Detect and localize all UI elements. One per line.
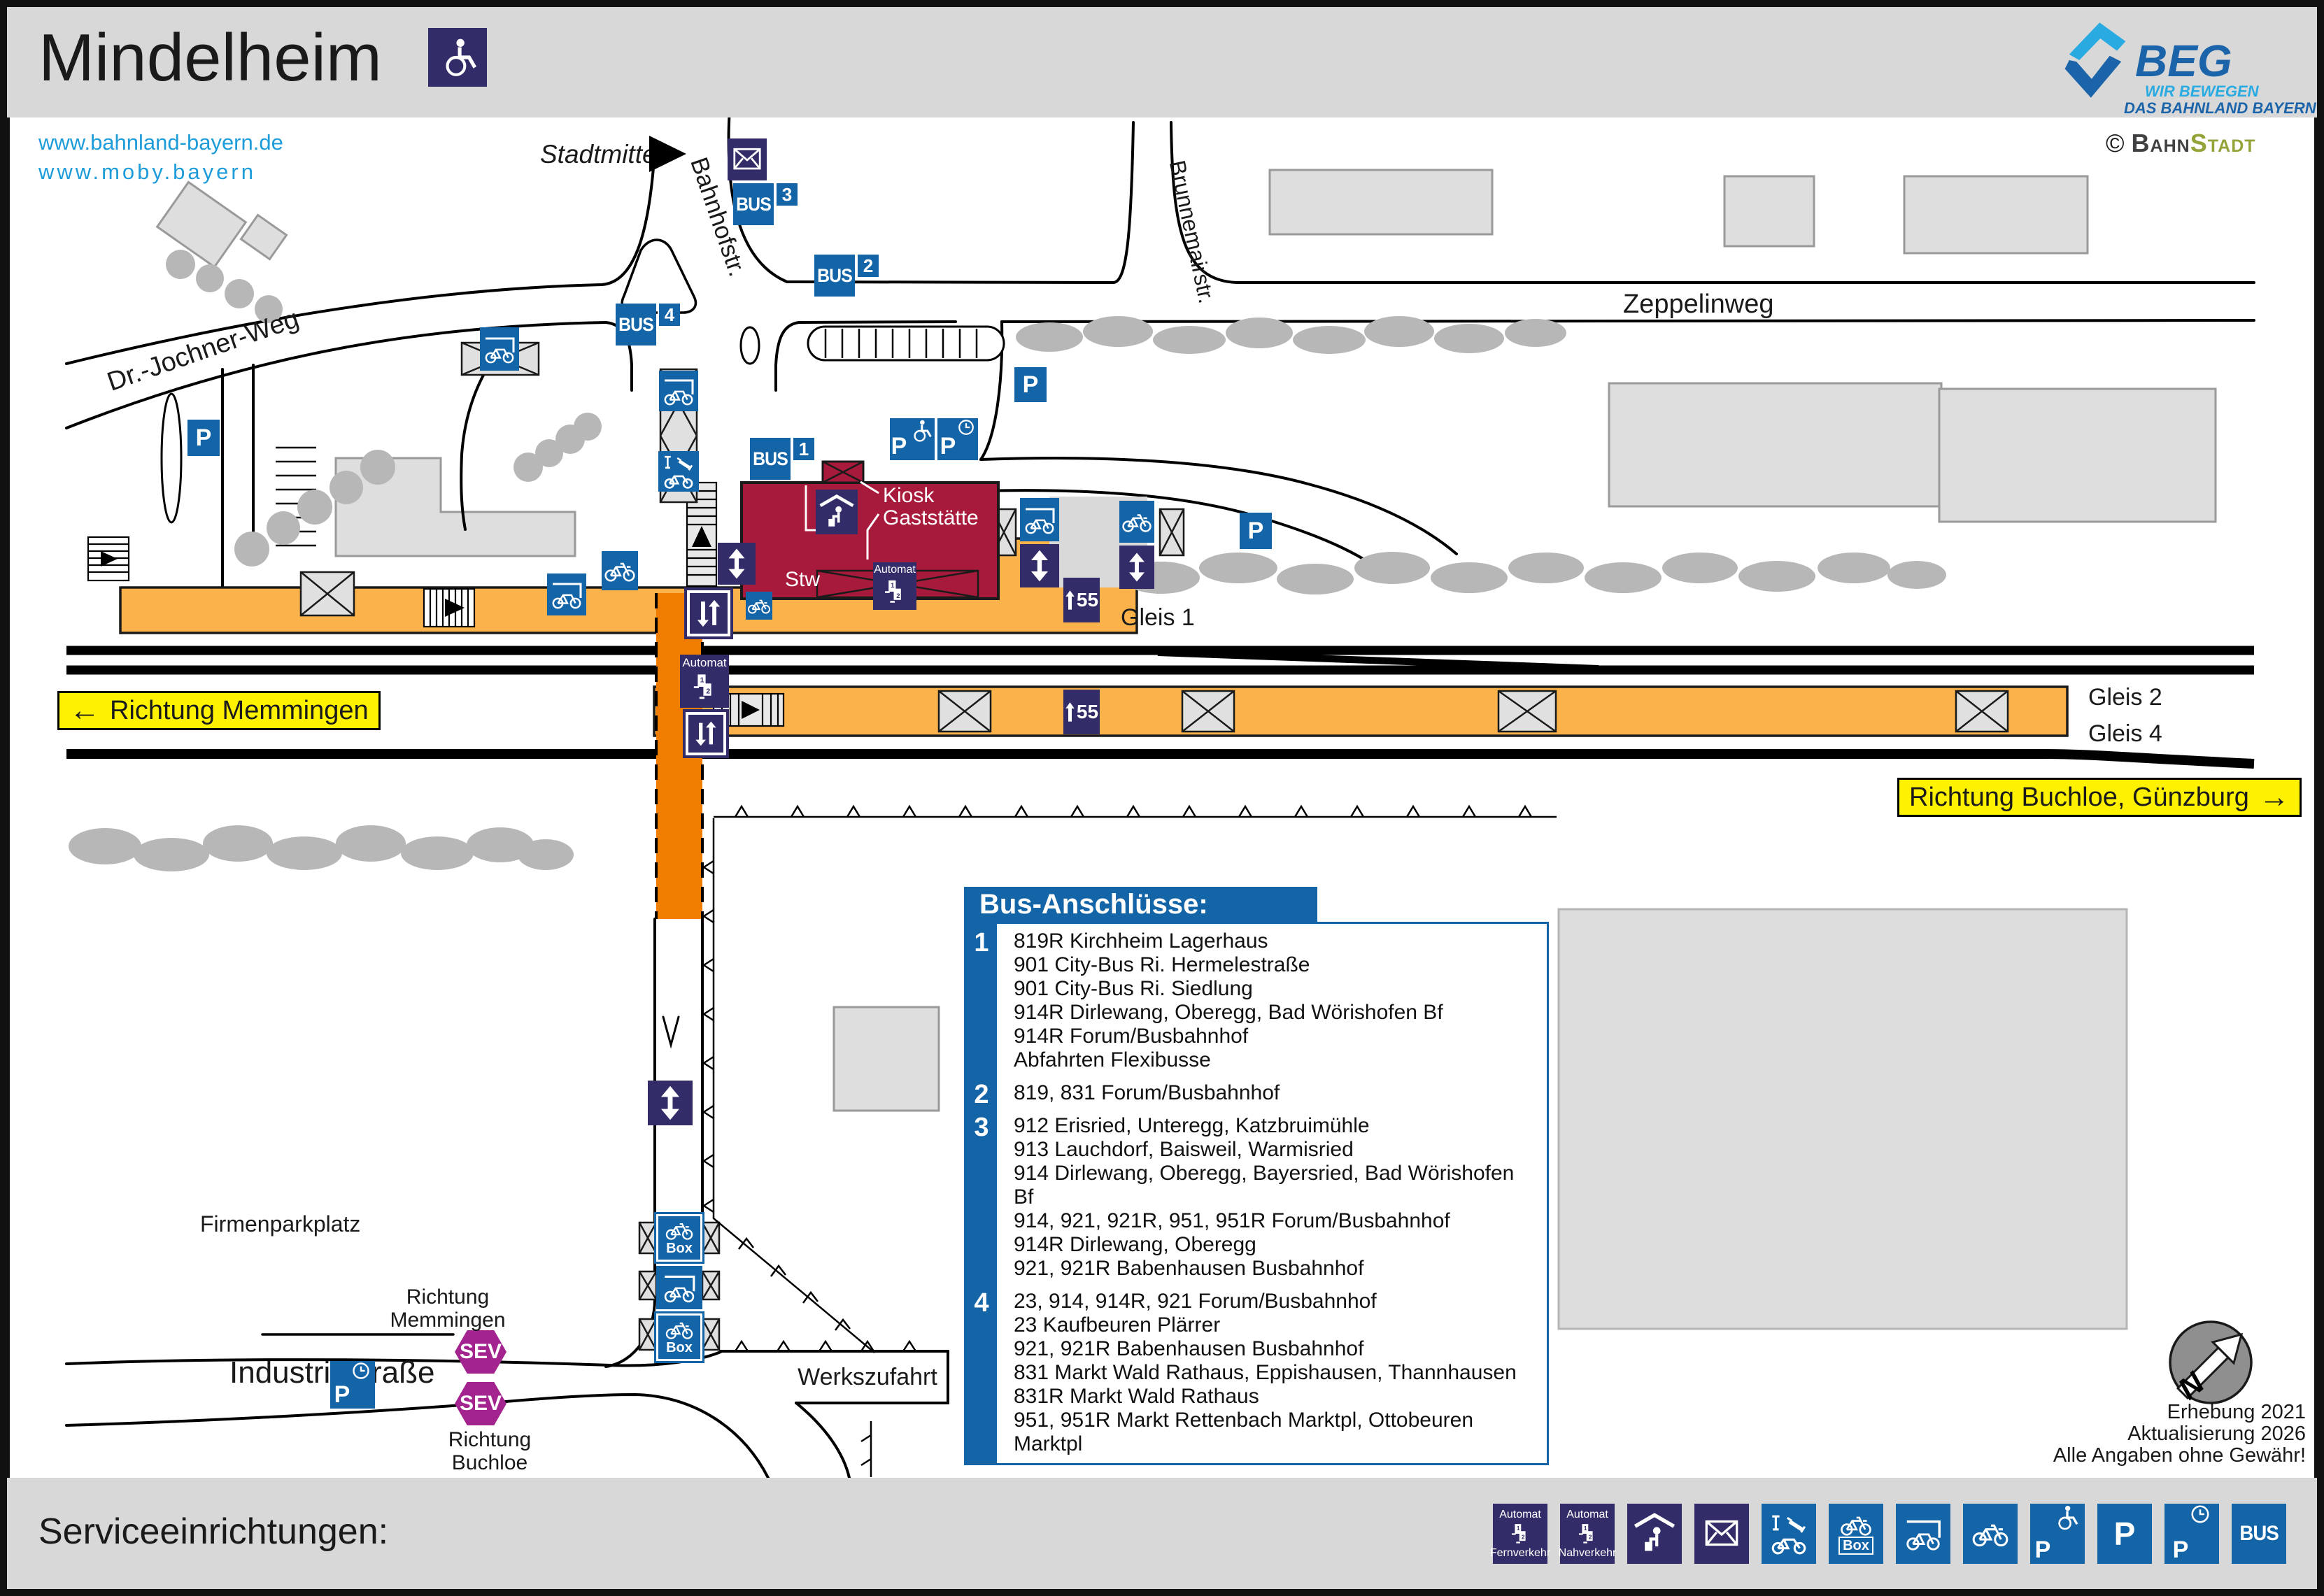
station-map-poster: N Mindelheim BEG WIR BEWEGEN DAS BAHNLAN… [0,0,2324,1596]
credit-stadt: Stadt [2190,129,2256,157]
bus-stop-3: BUS [733,183,774,225]
beg-diamond-icon [2057,17,2134,104]
direction-buchloe-sign: Richtung Buchloe, Günzburg → [1897,778,2302,817]
legend-parking-icon: P [2097,1504,2152,1564]
legend-bus-stop-icon: BUS [2232,1504,2286,1564]
bus-group-1-number: 1 [966,928,997,958]
parking-shortterm-icon-north: P [937,418,978,460]
road-dir-memmingen: RichtungMemmingen [364,1285,532,1332]
stadtmitte-arrow-icon [647,134,690,175]
station-building [742,462,998,599]
parking-icon-center: P [1014,367,1047,402]
bike-repair-station-icon-west [658,451,699,492]
label-gleis-1: Gleis 1 [1121,604,1195,632]
bus-group-4-number: 4 [966,1288,997,1318]
covered-bike-parking-icon-3 [547,573,586,615]
bus-panel-number-strip [966,924,997,1463]
label-gaststaette: Gaststätte [883,506,979,530]
legend-bike-box-icon: Box [1829,1504,1883,1564]
bike-box-icon-2: Box [656,1313,702,1361]
parking-disabled-icon: P [890,418,935,460]
wheelchair-icon [428,28,487,87]
legend-ticket-machine-longdistance-icon: Automat Fernverkehr [1493,1504,1547,1564]
covered-bike-parking-icon-east [1020,498,1059,541]
bus-connections-panel: 1 819R Kirchheim Lagerhaus 901 City-Bus … [964,922,1549,1465]
ticket-machine-icon-station: Automat [873,562,916,610]
bus-stop-2: BUS [814,255,855,297]
platform-height-sign-2: 55 [1063,690,1100,734]
bus-stop-2-number: 2 [856,255,879,277]
street-zeppelinweg: Zeppelinweg [1623,290,1773,320]
parking-icon-west: P [187,420,220,456]
bus-stop-1: BUS [750,438,791,480]
elevator-icon-south-path [648,1081,693,1125]
bike-box-icon-1: Box [656,1214,702,1262]
page-title: Mindelheim [38,20,382,97]
stairs-icon-platform1 [687,590,730,636]
parking-icon-east: P [1240,513,1272,549]
label-firmenparkplatz: Firmenparkplatz [200,1211,360,1237]
ticket-machine-icon-island: Automat [680,655,729,708]
bike-parking-icon-stairs [746,592,772,620]
bus-group-2-number: 2 [966,1080,997,1110]
road-dir-buchloe: RichtungBuchloe [406,1428,574,1474]
mailbox-icon [728,138,767,180]
street-stadtmitte: Stadtmitte [540,140,657,169]
bus-stop-1-number: 1 [792,438,814,460]
legend-parking-disabled-icon: P [2030,1504,2085,1564]
platform-island [654,687,2067,736]
bus-group-2: 2 819, 831 Forum/Busbahnhof [1014,1081,1537,1105]
credit-bahn: Bahn [2132,129,2190,157]
bus-group-3: 3 912 Erisried, Unteregg, Katzbruimühle … [1014,1114,1537,1281]
bike-parking-icon-west [602,551,638,590]
parking-shortterm-icon-south: P [330,1361,375,1409]
ramp-west-end [88,537,129,580]
legend-ticket-machine-regional-icon: Automat Nahverkehr [1560,1504,1615,1564]
covered-bike-parking-icon-2 [659,371,698,411]
covered-bike-parking-icon-south [656,1266,702,1309]
legend-bike-parking-icon [1963,1504,2018,1564]
elevator-icon-forecourt [718,543,756,585]
west-arrow-icon: ← [69,693,100,728]
beg-wordmark: BEG [2135,35,2232,87]
direction-memmingen-sign: ← Richtung Memmingen [57,691,381,730]
elevator-icon-east-2 [1119,546,1154,589]
north-arrow: N [2170,1322,2251,1406]
legend-mailbox-icon [1694,1504,1749,1564]
label-kiosk: Kiosk [883,484,934,508]
bus-stop-4-number: 4 [658,304,680,326]
bus-stop-4: BUS [616,304,656,345]
elevator-icon-east-1 [1020,544,1059,587]
legend-parking-shortterm-icon: P [2164,1504,2219,1564]
copyright-icon: © [2106,129,2125,157]
bus-stop-3-number: 3 [775,183,798,206]
label-stellwerk: Stw [785,568,820,592]
covered-bike-parking-icon-1 [480,327,519,371]
footer-title: Serviceeinrichtungen: [38,1511,388,1553]
link-moby-bayern: www.moby.bayern [38,159,256,185]
street-werkszufahrt: Werkszufahrt [763,1364,972,1391]
label-gleis-2: Gleis 2 [2088,684,2162,711]
platform-height-sign-1: 55 [1063,578,1100,622]
stairs-icon-island [686,712,726,755]
beg-tagline-2: DAS BAHNLAND BAYERN [2124,99,2316,117]
survey-notes: Erhebung 2021 Aktualisierung 2026 Alle A… [2053,1402,2306,1467]
bus-group-3-number: 3 [966,1113,997,1143]
underpass [656,593,702,919]
bike-parking-icon-east [1119,501,1154,543]
beg-tagline-1: WIR BEWEGEN [2145,83,2259,101]
label-gleis-4: Gleis 4 [2088,720,2162,748]
beg-logo: BEG WIR BEWEGEN DAS BAHNLAND BAYERN [2057,15,2323,113]
legend-waiting-area-icon [1627,1504,1682,1564]
bahnstadt-credit: © BahnStadt [2106,129,2256,158]
link-bahnland-bayern: www.bahnland-bayern.de [38,130,283,155]
bus-group-4: 4 23, 914, 914R, 921 Forum/Busbahnhof 23… [1014,1290,1537,1456]
east-arrow-icon: → [2259,780,2290,815]
legend-bike-repair-icon [1762,1504,1816,1564]
waiting-area-icon-station [816,490,858,534]
bus-group-1: 1 819R Kirchheim Lagerhaus 901 City-Bus … [1014,929,1537,1072]
legend-covered-bike-parking-icon [1896,1504,1950,1564]
ramp-platform-west [424,589,474,627]
bus-panel-title: Bus-Anschlüsse: [964,887,1317,922]
